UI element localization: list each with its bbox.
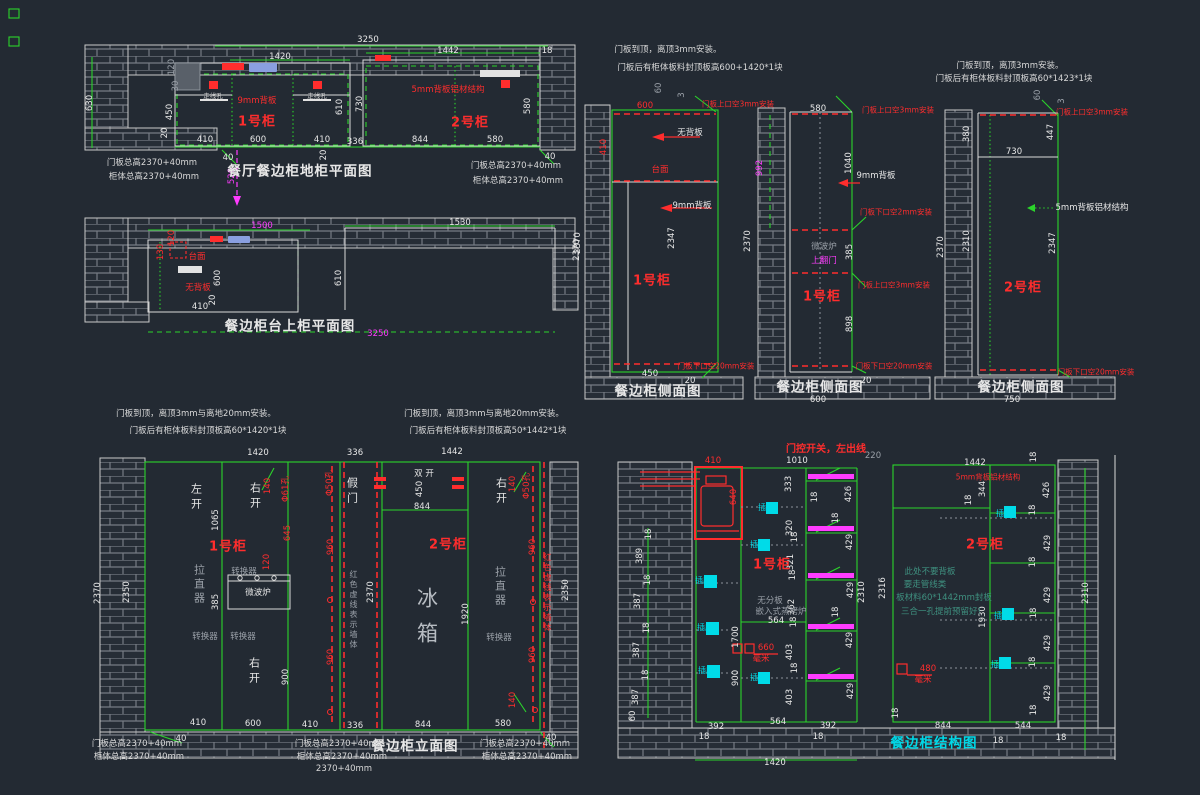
dim-label: 580 [495,720,511,729]
dim-label: 429 [847,683,856,699]
dim-label: 1920 [462,603,471,625]
dim-label: 门板后有柜体板料封顶板高600+1420*1块 [617,64,782,73]
dim-label: 600 [245,720,261,729]
dim-label: 2370 [94,582,103,604]
dim-label: 387 [632,689,641,705]
dim-label: 转换器 [192,633,218,642]
dim-label: 130 [157,244,166,260]
dim-label: 140 [509,476,518,492]
dim-label: 1065 [212,509,221,531]
dim-label: 844 [414,503,430,512]
cabinet-1-label: 1号柜 [238,116,276,129]
dim-label: 2370 [937,236,946,258]
panel-title: 餐边柜侧面图 [978,381,1065,395]
cabinet-1-label: 1号柜 [209,541,247,554]
dim-label: 20 [320,150,329,161]
dim-label: 9mm背板 [857,172,896,181]
dim-label: 门板下口空20mm安装 [678,362,755,370]
dim-label: 960 [327,649,336,665]
dim-label: 60 [629,711,638,722]
dim-label: 844 [935,722,951,731]
dim-label: 992 [756,160,765,176]
dim-label: 640 [730,489,739,505]
dim-label: 拉直器 [495,566,506,608]
dim-label: 600 [637,102,653,111]
dim-label: 门板总高2370+40mm [92,740,182,749]
dim-label: 447 [1047,124,1056,140]
dim-label: 3250 [367,330,389,339]
dim-label: 18 [1029,557,1038,568]
dim-label: 柜体总高2370+40mm [94,753,184,762]
dim-label: 140 [264,478,273,494]
dim-label: 2350 [562,579,571,601]
dim-label: 429 [847,582,856,598]
dim-label: 红色虚线表示墙体 [349,570,357,650]
dim-label: 410 [600,139,609,155]
dim-label: 门板上口空3mm安装 [1056,108,1128,116]
dim-label: 18 [965,495,974,506]
dim-label: 426 [1043,482,1052,498]
dim-label: 385 [212,594,221,610]
dim-label: 双 开 [414,470,434,479]
dim-label: 门板到顶，离顶3mm与离地20mm安装。 [404,410,564,419]
cabinet-1-label: 1号柜 [803,291,841,304]
socket-label: 插座 [750,541,766,549]
dim-label: 410 [192,303,208,312]
dim-label: 无背板 [677,129,703,138]
dim-label: 门板到顶，离顶3mm安装。 [957,62,1064,71]
dim-label: 2310 [963,230,972,252]
dim-label: 1530 [449,219,471,228]
dim-label: 18 [1029,505,1038,516]
panel-title: 餐边柜侧面图 [777,381,864,395]
dim-label: 960 [327,539,336,555]
dim-label: 392 [820,722,836,731]
dim-label: 18 [832,513,841,524]
dim-label: 1442 [437,47,459,56]
socket-label: 插座 [994,612,1010,620]
dim-label: 429 [1044,587,1053,603]
dim-label: 220 [865,452,881,461]
dim-label: 柜体总高2370+40mm [297,753,387,762]
socket-label: 插座 [758,504,774,512]
dim-label: 429 [1044,635,1053,651]
dim-label: 380 [963,126,972,142]
dim-label: 392 [708,723,724,732]
dim-label: Φ61孔 [282,476,291,502]
dim-label: 2310 [1082,582,1091,604]
dim-label: 645 [284,525,293,541]
dim-label: 拉直器 [194,564,205,606]
dim-label: 1040 [845,152,854,174]
dim-label: 410 [302,721,318,730]
dim-label: 120 [168,230,177,246]
dim-label: 18 [642,670,651,681]
dim-label: 20 [209,295,218,306]
dim-label: 门板后有柜体板料封顶板高60*1423*1块 [936,75,1093,84]
panel-title: 餐边柜结构图 [891,737,978,751]
dim-label: 18 [811,492,820,503]
dim-label: 18 [699,733,710,742]
dim-label: 120 [263,554,272,570]
dim-label: 387 [633,642,642,658]
dim-label: 门板后有柜体板料封顶板高60*1420*1块 [130,427,287,436]
dim-label: 403 [786,644,795,660]
annotation: 门控开关，左出线 [786,445,866,455]
cabinet-1-label: 1号柜 [633,275,671,288]
dim-label: 门板上口空3mm安装 [702,100,774,108]
dim-label: 1420 [269,53,291,62]
dim-label: 336 [347,449,363,458]
dim-label: 20 [161,128,170,139]
dim-label: 转换器 [231,568,257,577]
dim-label: 750 [1004,396,1020,405]
dim-label: 844 [412,136,428,145]
dim-label: 600 [810,396,826,405]
dim-label: 三合一孔提前预留好! [901,608,981,617]
dim-label: 18 [643,623,652,634]
panel-title: 餐边柜侧面图 [615,385,702,399]
dim-label: 左开 [191,483,202,513]
dim-label: 2316 [879,577,888,599]
dim-label: 9mm背板 [238,97,277,106]
dim-label: 转换器 [486,634,512,643]
dim-label: 2370 [574,232,583,254]
dim-label: 此处不要背板 [904,568,955,577]
dim-label: 假门 [347,477,358,507]
dim-label: 580 [810,105,826,114]
dim-label: 410 [314,136,330,145]
dim-label: 门板到顶，离顶3mm安装。 [615,46,722,55]
dim-label: 红色虚线表示墙体 [543,553,551,633]
cad-viewport: 325014201442186301203045020走线孔走线孔9mm背板1号… [0,0,1200,795]
dim-label: 18 [892,708,901,719]
dim-label: 544 [1015,722,1031,731]
dim-label: 18 [791,663,800,674]
dim-label: 630 [86,95,95,111]
dim-label: Φ50孔 [326,470,335,496]
dim-label: 右开 [496,477,507,507]
dim-label: 5mm背板铝材结构 [956,473,1020,481]
dim-label: 要走管线类 [904,581,947,590]
dim-label: 450 [642,370,658,379]
dim-label: 333 [785,476,794,492]
fridge-label: 冰箱 [416,587,437,657]
dim-label: 5mm背板铝材结构 [1056,204,1129,213]
dim-label: 2350 [123,581,132,603]
dim-label: 18 [832,607,841,618]
dim-label: 429 [1044,535,1053,551]
dim-label: 2310 [858,581,867,603]
dim-label: 5mm背板铝材结构 [412,86,485,95]
dim-label: 门板总高2370+40mm [480,740,570,749]
dim-label: 40 [223,154,234,163]
socket-label: 插座 [697,624,713,632]
dim-label: 18 [1030,608,1039,619]
dim-label: 微波炉 [811,243,837,252]
dim-label: 2347 [1049,232,1058,254]
socket-label: 插座 [991,661,1007,669]
dim-label: 564 [768,617,784,626]
dim-label: 微波炉 [245,589,271,598]
dim-label: 18 [644,575,653,586]
dim-label: 660 [758,644,774,653]
dim-label: 1442 [441,448,463,457]
dim-label: 960 [529,539,538,555]
dim-label: 1442 [964,459,986,468]
dim-label: 403 [786,689,795,705]
dim-label: 18 [645,529,654,540]
dim-label: 门板总高2370+40mm [471,162,561,171]
dim-label: 480 [920,665,936,674]
dim-label: 410 [190,719,206,728]
dim-label: 无分板 [757,597,783,606]
dim-label: 18 [993,737,1004,746]
dim-label: 上翻门 [811,257,837,266]
dim-label: 60 [1034,90,1043,101]
dim-label: 898 [846,316,855,332]
dim-label: 18 [1030,705,1039,716]
dim-label: 450 [416,481,425,497]
dim-label: 564 [770,718,786,727]
dim-label: 18 [790,617,799,628]
dim-label: 610 [335,270,344,286]
socket-label: 插座 [996,510,1012,518]
dim-label: 900 [732,670,741,686]
dim-label: 389 [636,548,645,564]
dim-label: 3 [678,92,687,97]
dim-label: 2370+40mm [316,765,372,774]
dim-label: 120 [168,59,177,75]
dim-label: 2370 [744,230,753,252]
dim-label: 台面 [651,166,668,175]
dim-label: 900 [282,669,291,685]
socket-label: 插座 [695,577,711,585]
cabinet-2-label: 2号柜 [966,539,1004,552]
dim-label: 960 [529,647,538,663]
cabinet-2-label: 2号柜 [451,117,489,130]
annotation-layer: 325014201442186301203045020走线孔走线孔9mm背板1号… [0,0,1200,795]
dim-label: 毫米 [914,676,931,685]
cabinet-2-label: 2号柜 [1004,282,1042,295]
dim-label: 336 [347,138,363,147]
dim-label: 410 [705,457,721,466]
dim-label: 18 [542,47,553,56]
dim-label: 18 [791,532,800,543]
dim-label: 3 [1058,98,1067,103]
dim-label: 18 [1056,734,1067,743]
dim-label: 610 [336,99,345,115]
dim-label: 转换器 [230,633,256,642]
panel-title: 餐厅餐边柜地柜平面图 [228,165,373,179]
dim-label: 1420 [764,759,786,768]
dim-label: 844 [415,721,431,730]
dim-label: 1420 [247,449,269,458]
panel-title: 餐边柜台上柜平面图 [225,320,356,334]
dim-label: 右开 [250,482,261,512]
dim-label: 柜体总高2370+40mm [473,177,563,186]
dim-label: 门板后有柜体板料封顶板高50*1442*1块 [410,427,567,436]
dim-label: 18 [1030,452,1039,463]
dim-label: 毫米 [752,655,769,664]
dim-label: 730 [1006,148,1022,157]
dim-label: 门板下口空20mm安装 [1058,368,1135,376]
cabinet-1-label: 1号柜 [753,559,791,572]
dim-label: 1010 [786,457,808,466]
dim-label: 台面 [188,253,205,262]
dim-label: 1500 [251,222,273,231]
dim-label: 2370 [367,581,376,603]
dim-label: 板材料60*1442mm封板 [896,594,992,603]
cabinet-2-label: 2号柜 [429,539,467,552]
dim-label: 18 [1029,657,1038,668]
dim-label: 无背板 [185,284,211,293]
dim-label: 门板到顶，离顶3mm与离地20mm安装。 [116,410,276,419]
dim-label: 走线孔 [203,93,223,100]
dim-label: 9mm背板 [673,202,712,211]
dim-label: 387 [634,593,643,609]
dim-label: 426 [845,486,854,502]
dim-label: 走线孔 [307,93,327,100]
dim-label: 410 [197,136,213,145]
dim-label: 344 [979,481,988,497]
dim-label: 600 [214,270,223,286]
dim-label: 580 [524,98,533,114]
dim-label: 60 [655,83,664,94]
dim-label: 429 [846,632,855,648]
dim-label: 429 [846,534,855,550]
dim-label: 18 [813,733,824,742]
dim-label: 门板下口空20mm安装 [856,362,933,370]
dim-label: 柜体总高2370+40mm [109,173,199,182]
dim-label: 385 [846,244,855,260]
dim-label: 30 [172,81,181,92]
dim-label: 600 [250,136,266,145]
dim-label: Φ50孔 [523,473,532,499]
dim-label: 429 [1044,685,1053,701]
dim-label: 2347 [668,227,677,249]
socket-label: 插座 [698,667,714,675]
dim-label: 450 [166,104,175,120]
dim-label: 门板总高2370+40mm [295,740,385,749]
dim-label: 柜体总高2370+40mm [482,753,572,762]
dim-label: 门板总高2370+40mm [107,159,197,168]
dim-label: 3250 [357,36,379,45]
dim-label: 336 [347,722,363,731]
dim-label: 门板下口空2mm安装 [860,208,932,216]
dim-label: 门板上口空3mm安装 [862,106,934,114]
socket-label: 插座 [750,674,766,682]
dim-label: 580 [487,136,503,145]
dim-label: 730 [356,96,365,112]
dim-label: 1700 [732,626,741,648]
dim-label: 140 [509,692,518,708]
dim-label: 右开 [249,657,260,687]
dim-label: 门板上口空3mm安装 [858,281,930,289]
